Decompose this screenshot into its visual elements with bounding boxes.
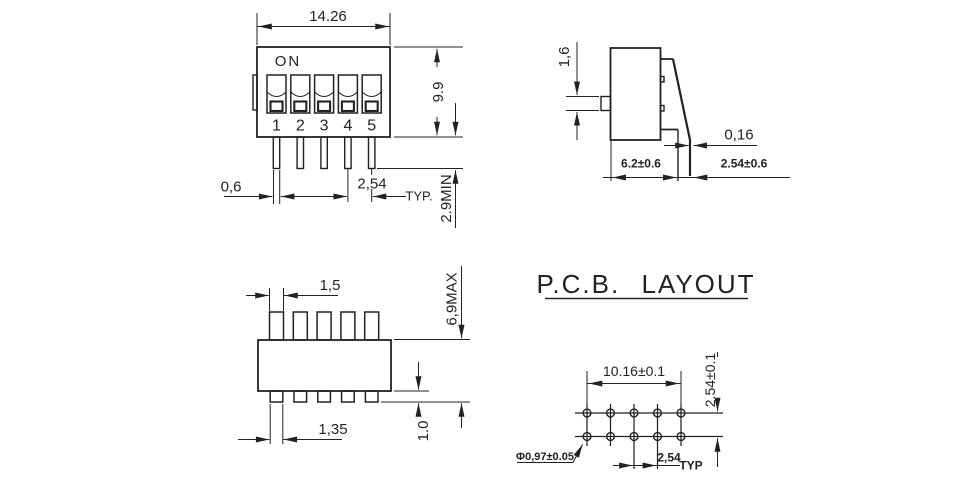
pcb-layout: P.C.B. LAYOUT <box>516 269 756 473</box>
dim-actuator-height-label: 1,6 <box>556 47 573 68</box>
drawing-canvas: ON 1 2 3 4 5 <box>0 0 960 488</box>
pin-1 <box>273 137 279 169</box>
pin-5 <box>369 137 375 169</box>
top-actuator-1 <box>270 312 284 340</box>
dim-hole-pitch-qualifier: TYP <box>679 459 702 473</box>
dim-pin-width-and-pitch: 0,6 2,54 TYP. <box>221 169 433 205</box>
slider-4 <box>338 75 357 113</box>
pin-3 <box>321 137 327 169</box>
dim-pin-width-label: 0,6 <box>221 179 242 196</box>
top-actuator-4 <box>341 312 355 340</box>
dim-body-height: 9.9 <box>394 47 463 137</box>
top-actuator-5 <box>365 312 379 340</box>
dim-depth-and-offset: 6.2±0.6 2.54±0.6 <box>603 157 790 178</box>
top-view: 1,5 6,9MAX 1.0 1,35 <box>238 266 470 444</box>
top-terminal-1 <box>270 391 283 402</box>
pin-4 <box>345 137 351 169</box>
dim-actuator-width: 1,5 <box>246 277 340 311</box>
position-label-4: 4 <box>343 118 352 135</box>
side-body-outline <box>611 48 661 140</box>
dim-pin-pitch-qualifier: TYP. <box>405 189 432 204</box>
dim-hole-row-span-label: 10.16±0.1 <box>603 363 665 379</box>
dim-hole-pitch: 2,54 TYP <box>613 451 703 473</box>
top-terminal-3 <box>318 391 331 402</box>
side-terminal-pin <box>673 59 690 176</box>
slider-1 <box>267 75 286 113</box>
top-body-outline <box>258 340 391 391</box>
position-label-5: 5 <box>367 118 376 135</box>
dim-body-depth-label: 6.2±0.6 <box>621 157 661 171</box>
pcb-layout-heading: P.C.B. LAYOUT <box>536 269 755 299</box>
position-label-2: 2 <box>296 118 305 135</box>
dim-actuator-height: 1,6 <box>556 42 599 140</box>
body-side-notch <box>253 75 257 110</box>
top-actuator-2 <box>293 312 307 340</box>
side-bump-upper <box>661 77 665 83</box>
slider-5 <box>362 75 381 113</box>
dim-hole-row-span: 10.16±0.1 <box>587 363 681 406</box>
top-terminal-5 <box>365 391 378 402</box>
dim-terminal-offset-label: 2.54±0.6 <box>721 157 768 171</box>
dim-pin-length-label: 2.9MIN <box>438 174 455 222</box>
side-view: 1,6 0,16 6.2±0.6 2.54±0.6 <box>556 42 790 181</box>
on-label: ON <box>275 53 302 70</box>
dim-body-height-label: 9.9 <box>430 82 447 103</box>
dim-body-width: 14.26 <box>257 8 390 45</box>
technical-drawing: ON 1 2 3 4 5 <box>0 0 960 488</box>
dim-hole-pitch-label: 2,54 <box>657 451 681 465</box>
top-terminal-2 <box>294 391 307 402</box>
dim-row-pitch: 2.54±0.1 <box>702 352 718 467</box>
dim-overall-height: 6,9MAX <box>381 266 470 428</box>
dim-terminal-tab-width: 1,35 <box>238 404 348 444</box>
dim-terminal-tab-height-label: 1.0 <box>415 421 432 442</box>
dim-hole-diameter: Φ0,97±0.05 <box>516 444 583 463</box>
dim-overall-height-label: 6,9MAX <box>444 272 461 325</box>
position-label-1: 1 <box>272 118 281 135</box>
front-view: ON 1 2 3 4 5 <box>221 8 463 228</box>
dim-terminal-thickness-label: 0,16 <box>724 127 753 144</box>
dim-terminal-tab-width-label: 1,35 <box>318 421 347 438</box>
top-terminal-4 <box>342 391 355 402</box>
pin-2 <box>297 137 303 169</box>
dim-hole-diameter-label: Φ0,97±0.05 <box>516 451 574 463</box>
dim-actuator-width-label: 1,5 <box>320 277 341 294</box>
side-actuator <box>601 97 611 111</box>
slider-2 <box>291 75 310 113</box>
position-label-3: 3 <box>320 118 329 135</box>
top-actuator-3 <box>317 312 331 340</box>
dim-pin-pitch-label: 2,54 <box>357 176 386 193</box>
slider-3 <box>315 75 334 113</box>
side-bump-lower <box>661 106 665 112</box>
dim-row-pitch-label: 2.54±0.1 <box>702 353 718 408</box>
dim-body-width-label: 14.26 <box>309 8 347 25</box>
